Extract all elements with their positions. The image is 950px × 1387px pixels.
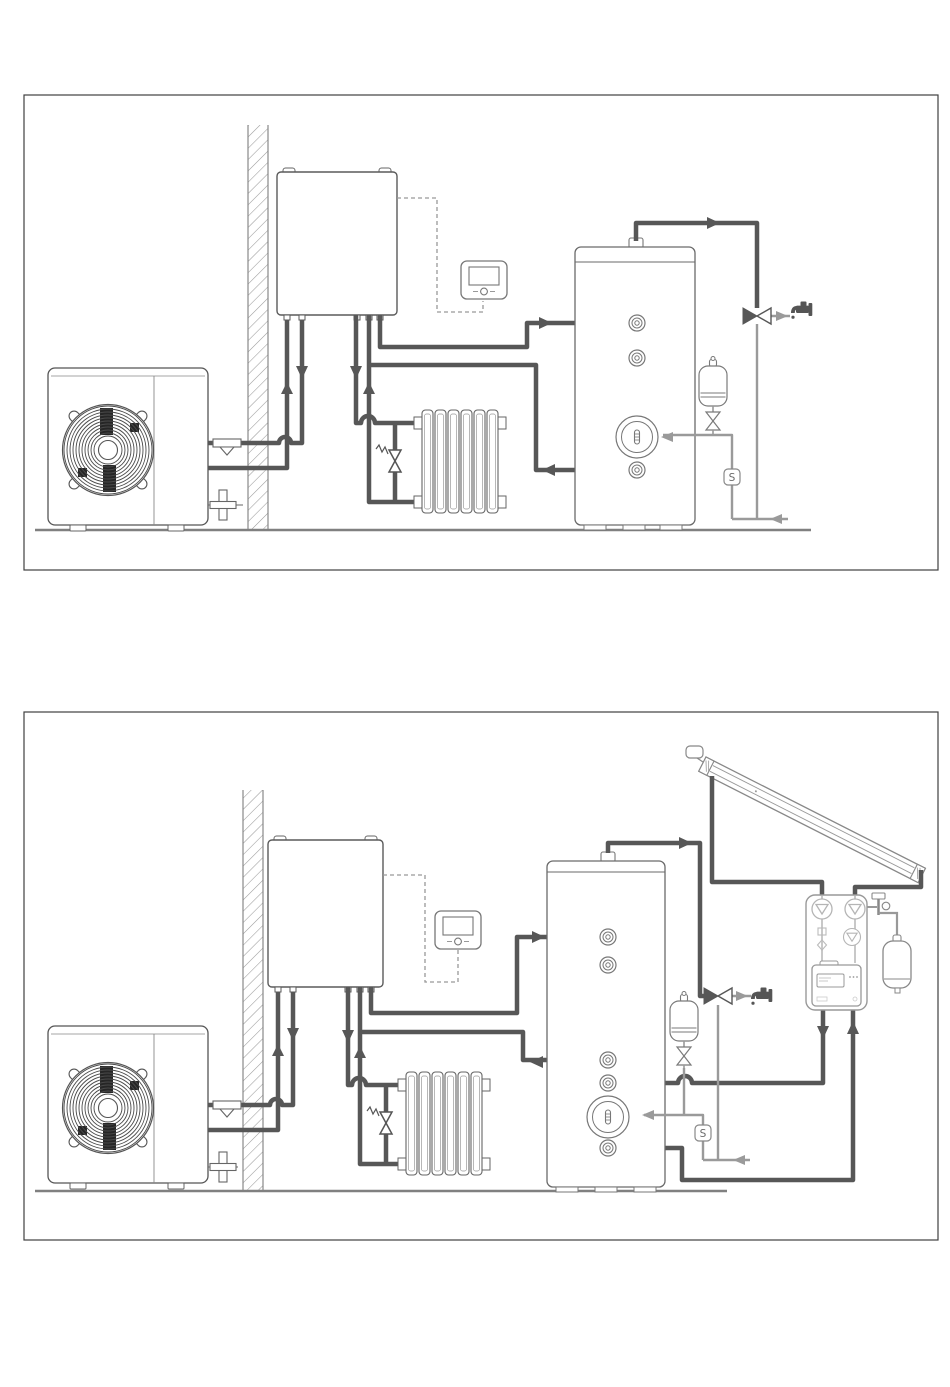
air-vent-icon: [686, 746, 703, 758]
valve-icon: [845, 899, 865, 919]
pump-icon: [844, 929, 861, 946]
tank-port-flow: [629, 315, 645, 331]
solar-dhw-tank-2: [547, 852, 665, 1192]
tank-port-return: [629, 462, 645, 478]
sensor-badge-1: S: [724, 469, 740, 485]
dhw-tank-1: [575, 238, 695, 530]
tank-thermometer-2: [587, 1096, 629, 1138]
sensor-label-1: S: [729, 472, 736, 484]
remote-controller-1: [461, 261, 507, 299]
outdoor-heat-pump-unit-2: [48, 1026, 208, 1189]
remote-controller-2: [435, 911, 481, 949]
solar-expansion-vessel: [883, 935, 911, 993]
tank-port-solar-out: [600, 1140, 616, 1156]
tank-port-spare: [600, 957, 616, 973]
tank-port-spare: [629, 350, 645, 366]
sensor-badge-2: S: [695, 1125, 711, 1141]
tank-port-return: [600, 1052, 616, 1068]
indoor-hydrobox-2: [268, 836, 383, 992]
tank-port-solar-in: [600, 1075, 616, 1091]
tank-port-flow: [600, 929, 616, 945]
solar-controller: [812, 961, 861, 1006]
diagram-2: S: [24, 712, 938, 1240]
flowmeter-icon: [812, 899, 832, 919]
document-page: S: [0, 0, 950, 1387]
tank-thermometer-1: [616, 416, 658, 458]
indoor-hydrobox-1: [277, 168, 397, 320]
diagram-1: S: [24, 95, 938, 570]
outdoor-heat-pump-unit-1: [48, 368, 208, 531]
sensor-label-2: S: [700, 1128, 707, 1140]
